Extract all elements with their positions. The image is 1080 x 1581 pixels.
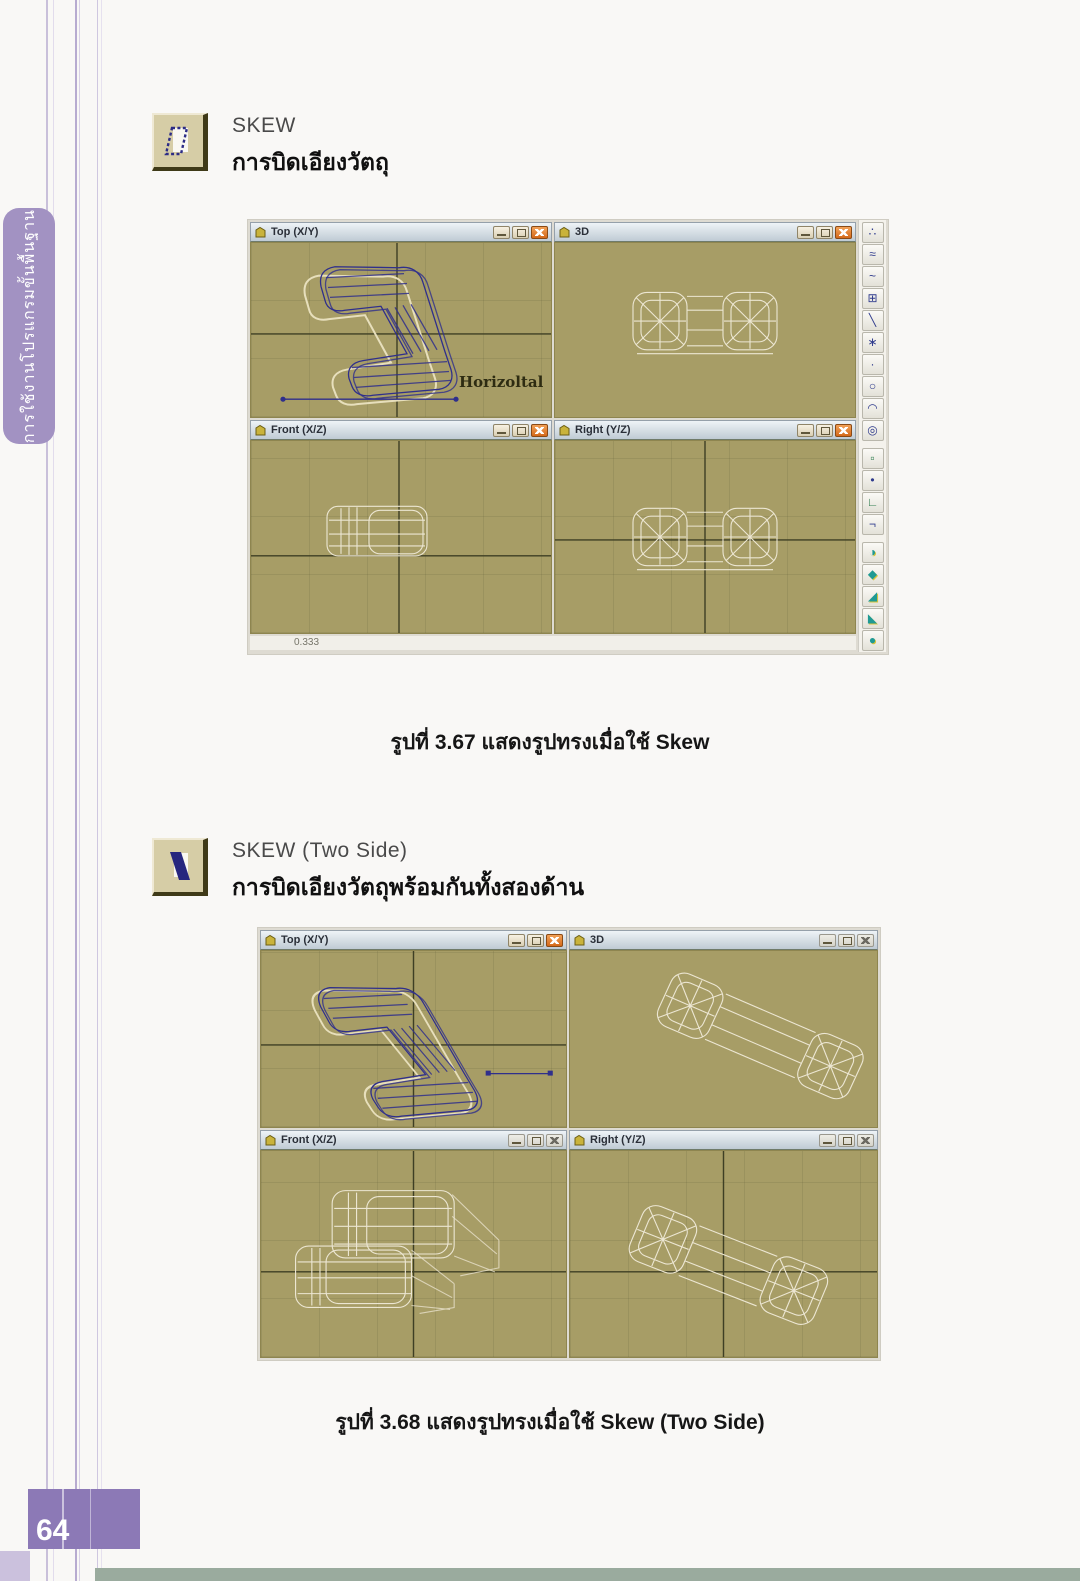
window-buttons — [508, 934, 563, 947]
section-2-subtitle: การบิดเอียงวัตถุพร้อมกันทั้งสองด้าน — [232, 870, 584, 906]
skew-icon-glyph — [159, 120, 199, 162]
skew-modifier[interactable]: ◣ — [862, 608, 884, 629]
viewport-titlebar[interactable]: 3D — [554, 222, 856, 242]
viewport-icon — [573, 1134, 586, 1147]
horizontal-annotation: Horizoltal — [459, 373, 543, 391]
wireframe-bar-3d — [555, 243, 855, 417]
window-buttons — [797, 424, 852, 437]
chapter-side-tab-label: การใช้งานโปรแกรมขั้นพื้นฐาน — [17, 209, 42, 443]
maximize-button[interactable] — [512, 226, 529, 239]
close-button[interactable] — [531, 226, 548, 239]
spline-tool[interactable]: ~ — [862, 266, 884, 287]
status-value: 0.333 — [294, 637, 319, 648]
maximize-button[interactable] — [512, 424, 529, 437]
close-button[interactable] — [835, 226, 852, 239]
angle-tool[interactable]: ¬ — [862, 514, 884, 535]
section-1-header: SKEW การบิดเอียงวัตถุ — [232, 114, 389, 181]
maximize-button[interactable] — [527, 934, 544, 947]
page: การใช้งานโปรแกรมขั้นพื้นฐาน 64 SKEW การบ… — [0, 0, 1080, 1581]
twist-modifier[interactable]: ◢ — [862, 586, 884, 607]
skew-two-side-icon-glyph — [159, 845, 199, 887]
window-buttons — [797, 226, 852, 239]
viewport-icon — [558, 226, 571, 239]
viewport-icon — [573, 934, 586, 947]
scatter-tool[interactable]: ∴ — [862, 222, 884, 243]
figure-3-67-caption: รูปที่ 3.67 แสดงรูปทรงเมื่อใช้ Skew — [140, 726, 960, 759]
minimize-button[interactable] — [797, 424, 814, 437]
page-number-block: 64 — [28, 1489, 140, 1549]
window-buttons — [493, 226, 548, 239]
maximize-button[interactable] — [527, 1134, 544, 1147]
wireframe-steps-front — [261, 1151, 566, 1357]
point-tool[interactable]: · — [862, 354, 884, 375]
star-tool[interactable]: ∗ — [862, 332, 884, 353]
viewport-label: Top (X/Y) — [271, 226, 489, 238]
viewport-canvas[interactable] — [569, 950, 878, 1128]
viewport-icon — [264, 1134, 277, 1147]
bottom-edge-strip — [95, 1568, 1080, 1581]
close-button[interactable] — [546, 934, 563, 947]
window-buttons — [819, 1134, 874, 1147]
margin-rule — [97, 0, 98, 1581]
close-button[interactable] — [546, 1134, 563, 1147]
ellipse-tool[interactable]: ◎ — [862, 420, 884, 441]
viewport-label: Right (Y/Z) — [590, 1134, 815, 1146]
viewport-titlebar[interactable]: 3D — [569, 930, 878, 950]
viewport-titlebar[interactable]: Top (X/Y) — [250, 222, 552, 242]
wave-tool[interactable]: ≈ — [862, 244, 884, 265]
viewport-titlebar[interactable]: Front (X/Z) — [260, 1130, 567, 1150]
line-tool[interactable]: ╲ — [862, 310, 884, 331]
corner-tool[interactable]: ∟ — [862, 492, 884, 513]
viewport-front-xz: Front (X/Z) — [250, 420, 552, 634]
close-button[interactable] — [835, 424, 852, 437]
minimize-button[interactable] — [508, 934, 525, 947]
stretch-modifier[interactable]: ● — [862, 630, 884, 651]
wireframe-bar-right-skewed — [570, 1151, 877, 1357]
section-2-header: SKEW (Two Side) การบิดเอียงวัตถุพร้อมกัน… — [232, 839, 584, 906]
lattice-tool[interactable]: ⊞ — [862, 288, 884, 309]
viewport-label: 3D — [590, 934, 815, 946]
page-number: 64 — [36, 1514, 69, 1548]
status-bar: 0.333 — [250, 636, 856, 650]
maximize-button[interactable] — [816, 226, 833, 239]
margin-rule — [79, 0, 80, 1581]
viewport-icon — [558, 424, 571, 437]
viewport-icon — [254, 424, 267, 437]
arc-tool[interactable]: ◠ — [862, 398, 884, 419]
modifier-toolbar: ∴ ≈ ~ ⊞ ╲ ∗ · ○ ◠ ◎ ▫ • ∟ ¬ ◑ ◆ ◢ ◣ ● — [858, 220, 886, 652]
viewport-front-xz: Front (X/Z) — [260, 1130, 567, 1358]
window-buttons — [508, 1134, 563, 1147]
viewport-canvas[interactable] — [260, 1150, 567, 1358]
minimize-button[interactable] — [819, 934, 836, 947]
skew-icon — [152, 113, 208, 171]
figure-3-68-screenshot: Top (X/Y) — [258, 928, 880, 1360]
viewport-label: Front (X/Z) — [271, 424, 489, 436]
viewport-icon — [254, 226, 267, 239]
viewport-label: Top (X/Y) — [281, 934, 504, 946]
wireframe-box-front — [251, 441, 551, 633]
chapter-side-tab: การใช้งานโปรแกรมขั้นพื้นฐาน — [3, 208, 55, 444]
close-button[interactable] — [857, 934, 874, 947]
wireframe-bar-right — [555, 441, 855, 633]
viewport-right-yz: Right (Y/Z) — [569, 1130, 878, 1358]
window-buttons — [493, 424, 548, 437]
viewport-3d: 3D — [554, 222, 856, 418]
viewport-label: 3D — [575, 226, 793, 238]
minimize-button[interactable] — [493, 424, 510, 437]
minimize-button[interactable] — [493, 226, 510, 239]
viewport-canvas[interactable] — [569, 1150, 878, 1358]
margin-rule — [75, 0, 77, 1581]
margin-rule — [101, 0, 102, 1581]
minimize-button[interactable] — [819, 1134, 836, 1147]
viewport-icon — [264, 934, 277, 947]
figure-3-68-caption: รูปที่ 3.68 แสดงรูปทรงเมื่อใช้ Skew (Two… — [140, 1406, 960, 1439]
wireframe-bar-3d-skewed — [570, 951, 877, 1127]
viewport-top-xy: Top (X/Y) — [250, 222, 552, 418]
close-button[interactable] — [531, 424, 548, 437]
section-1-title: SKEW — [232, 114, 389, 138]
viewport-canvas[interactable] — [554, 242, 856, 418]
viewport-titlebar[interactable]: Right (Y/Z) — [569, 1130, 878, 1150]
viewport-titlebar[interactable]: Top (X/Y) — [260, 930, 567, 950]
bend-modifier[interactable]: ◑ — [862, 542, 884, 563]
viewport-right-yz: Right (Y/Z) — [554, 420, 856, 634]
viewport-label: Front (X/Z) — [281, 1134, 504, 1146]
window-buttons — [819, 934, 874, 947]
wireframe-skew2-top — [261, 951, 566, 1127]
viewport-top-xy: Top (X/Y) — [260, 930, 567, 1128]
minimize-button[interactable] — [797, 226, 814, 239]
viewport-canvas[interactable] — [250, 440, 552, 634]
viewport-titlebar[interactable]: Right (Y/Z) — [554, 420, 856, 440]
taper-modifier[interactable]: ◆ — [862, 564, 884, 585]
maximize-button[interactable] — [816, 424, 833, 437]
close-button[interactable] — [857, 1134, 874, 1147]
viewport-canvas[interactable]: Horizoltal — [250, 242, 552, 418]
circle-tool[interactable]: ○ — [862, 376, 884, 397]
page-corner-decor — [0, 1551, 30, 1581]
skew-two-side-icon — [152, 838, 208, 896]
figure-3-67-screenshot: Top (X/Y) — [248, 220, 888, 654]
viewport-label: Right (Y/Z) — [575, 424, 793, 436]
viewport-3d: 3D — [569, 930, 878, 1128]
viewport-canvas[interactable] — [260, 950, 567, 1128]
dot-tool[interactable]: • — [862, 470, 884, 491]
viewport-canvas[interactable] — [554, 440, 856, 634]
maximize-button[interactable] — [838, 1134, 855, 1147]
section-1-subtitle: การบิดเอียงวัตถุ — [232, 145, 389, 181]
viewport-titlebar[interactable]: Front (X/Z) — [250, 420, 552, 440]
minimize-button[interactable] — [508, 1134, 525, 1147]
maximize-button[interactable] — [838, 934, 855, 947]
window-tool[interactable]: ▫ — [862, 448, 884, 469]
section-2-title: SKEW (Two Side) — [232, 839, 584, 863]
